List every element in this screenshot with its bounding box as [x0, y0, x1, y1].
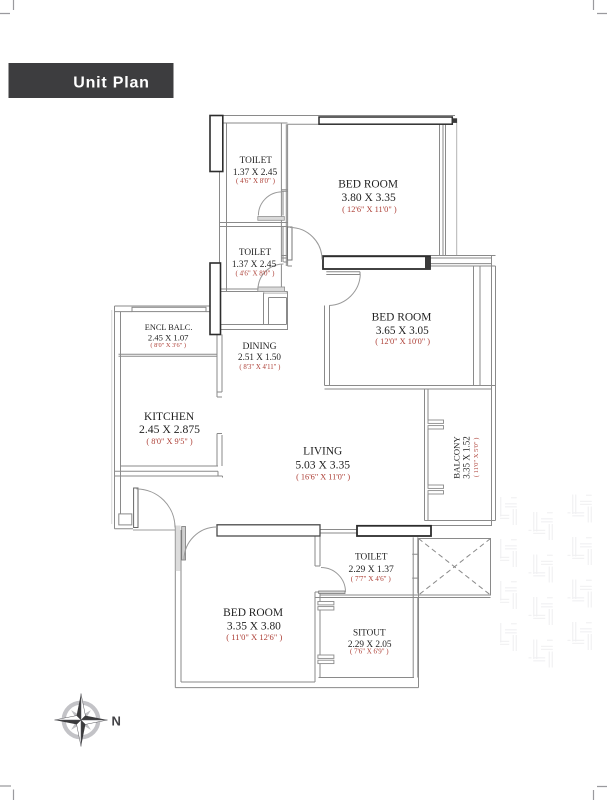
svg-text:SITOUT: SITOUT — [353, 628, 386, 638]
svg-text:2.51 X 1.50: 2.51 X 1.50 — [238, 352, 281, 362]
svg-text:( 4'6" X 8'0" ): ( 4'6" X 8'0" ) — [236, 269, 276, 277]
svg-text:2.29 X 1.37: 2.29 X 1.37 — [349, 564, 395, 575]
svg-text:KITCHEN: KITCHEN — [144, 411, 194, 423]
svg-text:BED ROOM: BED ROOM — [223, 607, 283, 619]
svg-text:( 11'0" X 12'6" ): ( 11'0" X 12'6" ) — [226, 632, 282, 642]
svg-text:DINING: DINING — [242, 341, 276, 352]
svg-text:1.37 X 2.45: 1.37 X 2.45 — [232, 260, 277, 270]
svg-text:( 12'6" X 11'0" ): ( 12'6" X 11'0" ) — [342, 205, 397, 214]
svg-text:( 7'6" X 6'9" ): ( 7'6" X 6'9" ) — [350, 648, 389, 656]
svg-text:( 16'6" X 11'0" ): ( 16'6" X 11'0" ) — [296, 473, 350, 482]
svg-text:( 12'0" X 10'0" ): ( 12'0" X 10'0" ) — [375, 337, 430, 346]
svg-text:( 8'3" X 4'11" ): ( 8'3" X 4'11" ) — [239, 364, 280, 371]
svg-text:Unit Plan: Unit Plan — [73, 74, 150, 91]
svg-text:LIVING: LIVING — [303, 446, 342, 458]
svg-text:2.45 X 2.875: 2.45 X 2.875 — [139, 423, 200, 436]
svg-text:3.80 X 3.35: 3.80 X 3.35 — [341, 192, 396, 204]
svg-text:( 8'0" X 3'6" ): ( 8'0" X 3'6" ) — [150, 342, 186, 349]
svg-text:N: N — [112, 714, 121, 729]
svg-text:( 8'0" X 9'5" ): ( 8'0" X 9'5" ) — [146, 437, 192, 446]
svg-text:TOILET: TOILET — [240, 156, 273, 166]
svg-text:3.65 X 3.05: 3.65 X 3.05 — [376, 325, 429, 337]
svg-text:( 11'0" X 5'0" ): ( 11'0" X 5'0" ) — [473, 438, 480, 478]
svg-text:BED ROOM: BED ROOM — [338, 179, 398, 191]
svg-text:5.03 X 3.35: 5.03 X 3.35 — [295, 459, 350, 472]
svg-text:TOILET: TOILET — [355, 553, 388, 563]
svg-text:TOILET: TOILET — [239, 248, 272, 258]
svg-text:BED ROOM: BED ROOM — [372, 311, 432, 323]
svg-text:3.35 X 1.52: 3.35 X 1.52 — [462, 436, 472, 479]
svg-text:BALCONY: BALCONY — [452, 436, 462, 479]
svg-text:( 4'6" X 8'0" ): ( 4'6" X 8'0" ) — [236, 177, 276, 185]
svg-text:ENCL BALC.: ENCL BALC. — [145, 323, 193, 332]
svg-text:3.35 X 3.80: 3.35 X 3.80 — [227, 620, 281, 632]
svg-text:( 7'7" X 4'6" ): ( 7'7" X 4'6" ) — [351, 575, 392, 583]
